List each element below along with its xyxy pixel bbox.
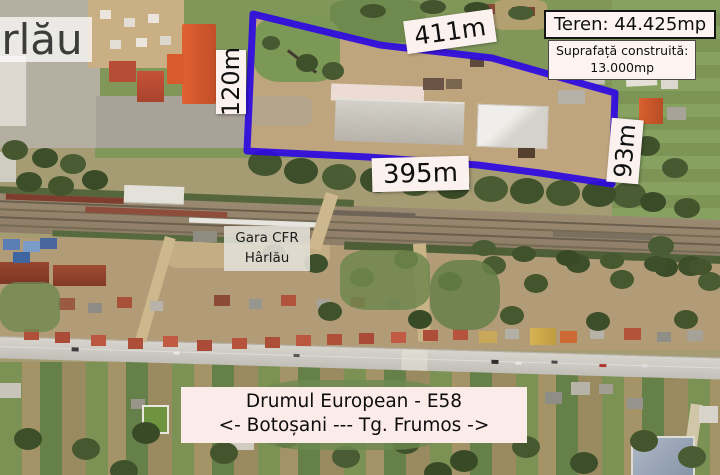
- dimension-label-left-text: 120m: [217, 47, 245, 116]
- info-box-area: Teren: 44.425mp: [544, 10, 716, 39]
- road-label-line1: Drumul European - E58: [181, 390, 527, 414]
- info-built-line1: Suprafață construită:: [556, 43, 688, 60]
- dimension-label-bottom: 395m: [372, 156, 470, 193]
- dimension-label-right-text: 93m: [609, 123, 642, 179]
- info-built-line2: 13.000mp: [556, 60, 688, 77]
- station-label: Gara CFR Hârlău: [224, 226, 310, 271]
- station-label-line2: Hârlău: [224, 249, 310, 269]
- satellite-map: Hârlău 411m 120m 395m 93m Teren: 44.425m…: [0, 0, 720, 475]
- town-label: Hârlău: [0, 17, 92, 62]
- dimension-label-right: 93m: [606, 118, 643, 185]
- dimension-label-left: 120m: [216, 50, 246, 114]
- station-label-line1: Gara CFR: [224, 229, 310, 249]
- road-label: Drumul European - E58 <- Botoșani --- Tg…: [181, 387, 527, 443]
- info-box-built: Suprafață construită: 13.000mp: [548, 40, 696, 80]
- road-label-line2: <- Botoșani --- Tg. Frumos ->: [181, 414, 527, 438]
- town-label-text: Hârlău: [0, 17, 92, 62]
